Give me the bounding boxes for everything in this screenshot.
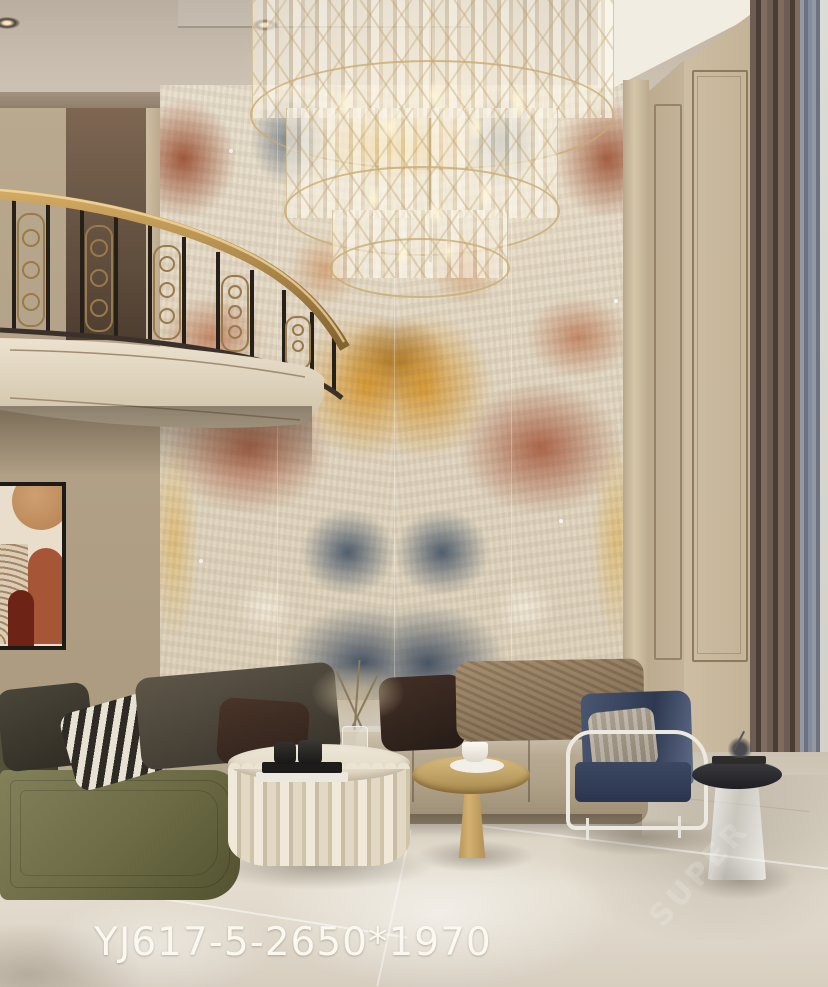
chandelier-light [442,238,455,264]
chandelier-light [510,88,526,118]
chandelier-light [426,80,442,110]
chandelier-light [366,184,381,212]
black-cup [298,740,322,764]
chaise-stitch-line [20,790,218,876]
chandelier-light [428,198,443,226]
curtain-sheer [820,0,828,872]
fluted-coffee-table [228,768,410,866]
artwork-arch-darkred [8,590,34,646]
under-balcony-shadow [0,406,312,476]
marble-model-code: YJ617-5-2650*1970 [94,920,514,970]
coffee-cup [462,742,488,762]
curtain-blue-gray [800,0,822,776]
chandelier-light [468,112,484,142]
chandelier-light [382,112,398,142]
pillar-front-molding-inner [697,76,741,654]
artwork-circle [12,482,66,530]
chandelier-light [396,242,409,268]
chandelier-light [336,88,352,118]
black-cup [274,742,296,764]
pillar-side-molding [654,104,682,660]
curtain-brown [750,0,802,772]
armchair-leg [678,816,681,838]
abstract-artwork [0,482,66,650]
chandelier-rim-3 [330,238,510,298]
glass-side-table-top [692,760,782,789]
chandelier-light [478,180,493,208]
living-room-photo: SUPER YJ617-5-2650*1970 [0,0,828,987]
book-stack [256,772,348,782]
armchair-white-frame [566,730,708,830]
armchair-leg [586,818,589,840]
